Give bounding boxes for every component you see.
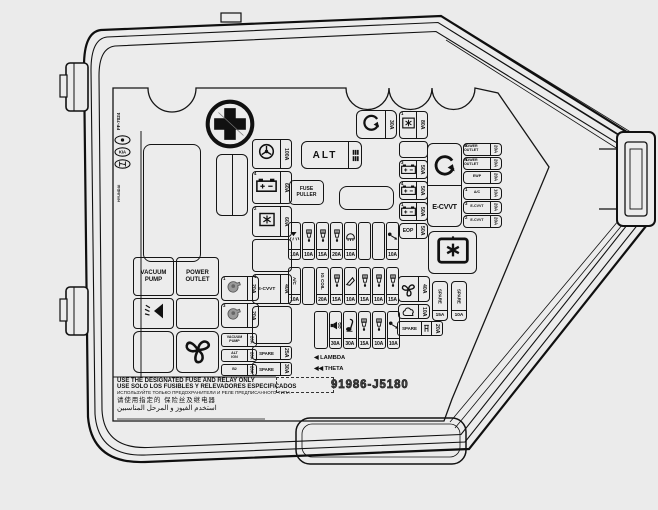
- fuse-rotate-30: 30A: [356, 110, 397, 139]
- fuse-spare-h20: SPARE 20A: [397, 321, 443, 336]
- horn-relay-box: [133, 298, 174, 329]
- injector-icon: [303, 223, 314, 249]
- trumpet-icon: [344, 312, 356, 338]
- washer-icon: [289, 223, 300, 249]
- fan-icon: [399, 277, 418, 301]
- fuse-eps: 100A: [252, 139, 292, 169]
- blank-relay-box: [133, 331, 174, 373]
- fuse-spare-v15: SPARE 15A: [432, 281, 448, 321]
- fuse-ecvvt-2: 2E-CVVT 20A: [463, 215, 502, 228]
- fuse-canister-10: 10A: [398, 304, 430, 319]
- blank-slot-wide: [339, 186, 394, 210]
- fuse-alt: ALT: [301, 141, 362, 169]
- mold-code: FF-7024: [116, 96, 121, 130]
- injector-icon: [373, 312, 385, 338]
- fuse-battery-4b: 4 50A: [399, 181, 428, 200]
- hinge-bottom: [60, 287, 88, 335]
- injector-icon: [359, 312, 371, 338]
- canister-icon: [399, 305, 418, 318]
- compressor-relay-box: [428, 231, 477, 274]
- fuse-spare-25: SPARE 25A: [252, 346, 292, 360]
- sensor-icon: [387, 223, 398, 249]
- injector-icon: [317, 223, 328, 249]
- vacuum-pump-box: VACUUM PUMP: [133, 257, 174, 296]
- blank-cell: [358, 222, 371, 260]
- pump-icon: [226, 279, 243, 299]
- fuse-ewp: EWP 20A: [463, 171, 502, 184]
- blank-cell: [314, 311, 328, 349]
- engine-legend: ◀ LAMBDA ◀◀ THETA: [314, 353, 345, 375]
- rotate-arrow-icon: [362, 113, 381, 137]
- horn-icon: [330, 312, 342, 338]
- part-number: 91986-J5180: [331, 377, 409, 391]
- battery-plus-icon: [205, 99, 255, 149]
- fuse-row-3: 30A 30A 15A 10A 10A: [314, 311, 400, 349]
- fuse-starbox-80: 1 80A: [399, 111, 428, 139]
- fuse-ecvvt-3: 3E-CVVT 20A: [463, 201, 502, 214]
- fuse-spare-v10: SPARE 10A: [451, 281, 467, 321]
- fan-icon: [182, 334, 214, 371]
- blank-slot-double: [216, 154, 248, 216]
- injector-icon: [331, 268, 342, 294]
- warning-block: USE THE DESIGNATED FUSE AND RELAY ONLY U…: [117, 378, 277, 412]
- fuse-row-1: 10A 10A 15A 20A 10A 10A: [288, 222, 399, 260]
- fuse-spare-30: SPARE 30A: [252, 362, 292, 376]
- star-box-icon: [402, 116, 415, 134]
- ecvvt-big-label: E-CVVT: [428, 186, 461, 226]
- fuse-battery-4: 4 60A: [252, 171, 292, 204]
- brand-name: HYUNDAI: [117, 168, 121, 202]
- fuse-battery-3: 3 50A: [399, 160, 428, 179]
- injector-icon: [331, 223, 342, 249]
- lamp-icon: [345, 223, 356, 249]
- fuse-battery-1: 1 50A: [399, 202, 428, 221]
- fuse-b2: B2 20A: [221, 364, 257, 376]
- cone-icon: [345, 268, 356, 294]
- battery-icon: [256, 178, 277, 197]
- blank-slot-large: [143, 144, 201, 262]
- injector-icon: [373, 268, 384, 294]
- blank-relay-box: [176, 298, 219, 329]
- legend-theta: ◀◀ THETA: [314, 364, 345, 375]
- fuse-starbox-2: 2 60A: [252, 206, 292, 237]
- warning-zh: 请使用指定的 保险丝及继电器: [117, 395, 277, 404]
- blank-cell: [372, 222, 385, 260]
- rotate-arrow-icon: [428, 144, 461, 186]
- blank-fuse-slot: [399, 141, 428, 158]
- fuse-row-2: A/C10A IG COIL20A 15A 10A 15A 10A 15A: [288, 267, 399, 305]
- blank-fuse-slot: [252, 239, 292, 272]
- legend-lambda: ◀ LAMBDA: [314, 353, 345, 364]
- compressor-icon: [436, 235, 470, 270]
- fuse-power-outlet-2: 2POWER OUTLET 20A: [463, 143, 502, 156]
- fuse-power-outlet-1: 1POWER OUTLET 20A: [463, 157, 502, 170]
- power-outlet-box: POWER OUTLET: [176, 257, 219, 296]
- horn-big-icon: [143, 302, 165, 325]
- relay-pump-3: 3 20A: [221, 303, 259, 328]
- hinge-top: [60, 63, 88, 111]
- label-dashed-box: [276, 377, 334, 393]
- fuse-alt-ign: ALT IGN 20A: [221, 349, 257, 362]
- fuse-box-cover: KIA: [0, 0, 658, 510]
- fuse-ac: 1A/C 10A: [463, 187, 502, 200]
- pump-icon: [226, 306, 243, 326]
- injector-icon: [387, 268, 398, 294]
- fan-relay-box: [176, 331, 219, 373]
- blank-cell: [302, 267, 315, 305]
- ecvvt-relay-stack: E-CVVT: [427, 143, 462, 227]
- eps-icon: [258, 143, 275, 165]
- injector-icon: [359, 268, 370, 294]
- relay-pump-1: 1 20A: [221, 276, 259, 301]
- warning-ar: استخدم الفيوز و المرحل المناسبين: [117, 404, 277, 412]
- puller-icon: [421, 322, 431, 335]
- fuse-eop: EOP 50A: [399, 223, 428, 239]
- fuse-fan-40: 40A: [398, 276, 430, 302]
- star-box-icon: [259, 212, 275, 232]
- fuse-puller-box: FUSE PULLER: [289, 180, 324, 205]
- fuse-vacuum-pump: VACUUM PUMP 20A: [221, 333, 257, 347]
- fusible-link-icon: [348, 142, 361, 168]
